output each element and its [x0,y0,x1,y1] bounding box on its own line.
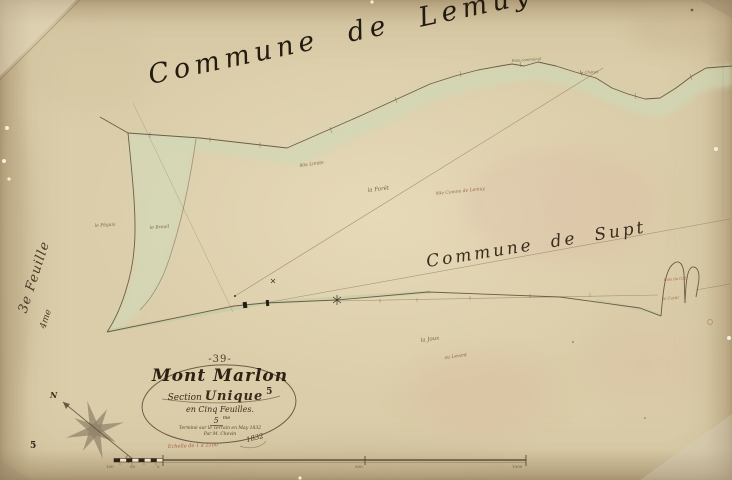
compass-rose [63,401,135,463]
north-label: N [50,390,57,400]
survey-note-line1: Terminé sur le Terrain en May 1832 [140,426,300,431]
sheet-ordinal-number: 5 [210,416,223,426]
scale-number: 500 [355,464,363,469]
scale-number: 1000 [512,464,522,469]
cadastral-map-sheet: Commune de Lemuy Commune de Supt 3e Feui… [0,0,732,480]
survey-note-line2: Par M. Chevin [140,432,300,437]
feuilles-line: en Cinq Feuilles. [140,405,300,414]
scale-number: 50 [130,464,135,469]
title-cartouche: -39- Mont Marlon Section Unique 5 en Cin… [140,354,300,437]
section-line: Section Unique 5 [140,387,300,404]
scale-number: 100 [106,464,114,469]
section-name: Unique [205,389,264,404]
page-number: 5 [30,441,36,451]
field-annotation: le Chanet [580,69,599,75]
scale-number: 0 [157,464,160,469]
map-title: Mont Marlon [140,366,300,386]
section-superscript: 5 [266,387,272,397]
sheet-ordinal-suffix: me [223,415,231,421]
plate-number: -39- [140,354,300,365]
section-word: Section [168,393,202,403]
sheet-ordinal: 5me [140,415,300,425]
